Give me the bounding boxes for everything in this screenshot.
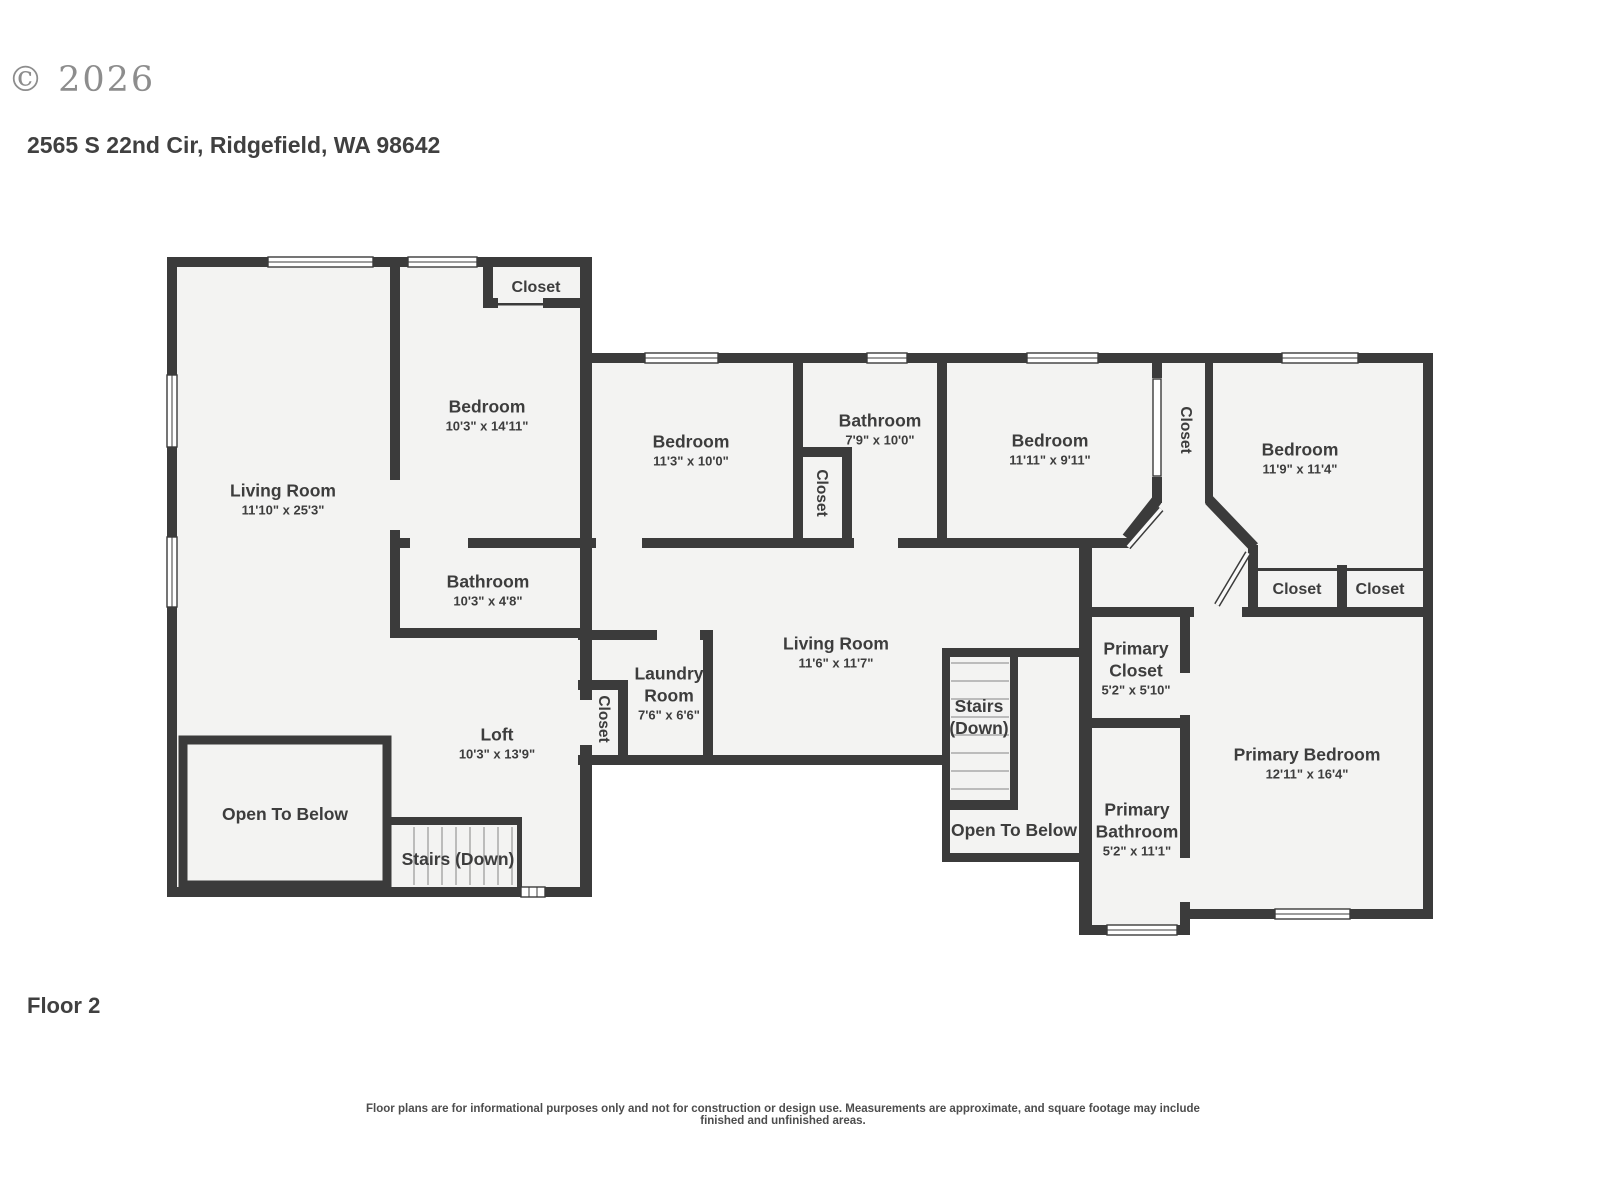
floor-label: Floor 2 xyxy=(27,993,100,1019)
room-label-open-to-below-left: Open To Below xyxy=(222,803,348,825)
room-label-closet-a: Closet xyxy=(1273,580,1322,600)
room-label-laundry-room: Laundry Room7'6" x 6'6" xyxy=(630,662,708,723)
room-label-primary-bedroom: Primary Bedroom12'11" x 16'4" xyxy=(1234,743,1381,782)
room-label-closet-hall: Closet xyxy=(1175,406,1195,453)
room-label-closet-top: Closet xyxy=(512,278,561,298)
room-label-primary-closet: Primary Closet5'2" x 5'10" xyxy=(1096,637,1176,698)
room-label-loft: Loft10'3" x 13'9" xyxy=(459,723,535,762)
room-label-closet-bathroom2: Closet xyxy=(811,469,831,516)
floorplan-page: © 2026 2565 S 22nd Cir, Ridgefield, WA 9… xyxy=(0,0,1600,1200)
room-label-living-room-1: Living Room11'10" x 25'3" xyxy=(230,479,336,518)
room-label-bedroom-2: Bedroom11'3" x 10'0" xyxy=(653,430,730,469)
room-label-stairs-down-center: Stairs (Down) xyxy=(944,695,1014,739)
room-label-bathroom-1: Bathroom10'3" x 4'8" xyxy=(447,570,530,609)
disclaimer-text: Floor plans are for informational purpos… xyxy=(350,1103,1216,1127)
room-label-primary-bathroom: Primary Bathroom5'2" x 11'1" xyxy=(1090,798,1184,859)
room-label-open-to-below-center: Open To Below xyxy=(951,819,1077,841)
room-label-closet-b: Closet xyxy=(1356,580,1405,600)
room-label-bathroom-2: Bathroom7'9" x 10'0" xyxy=(839,409,922,448)
room-label-bedroom-1: Bedroom10'3" x 14'11" xyxy=(446,395,529,434)
room-label-stairs-down-left: Stairs (Down) xyxy=(402,848,515,870)
room-label-bedroom-4: Bedroom11'9" x 11'4" xyxy=(1262,438,1339,477)
room-label-bedroom-3: Bedroom11'11" x 9'11" xyxy=(1009,429,1090,468)
room-label-living-room-2: Living Room11'6" x 11'7" xyxy=(783,632,889,671)
room-label-closet-laundry: Closet xyxy=(593,695,613,742)
